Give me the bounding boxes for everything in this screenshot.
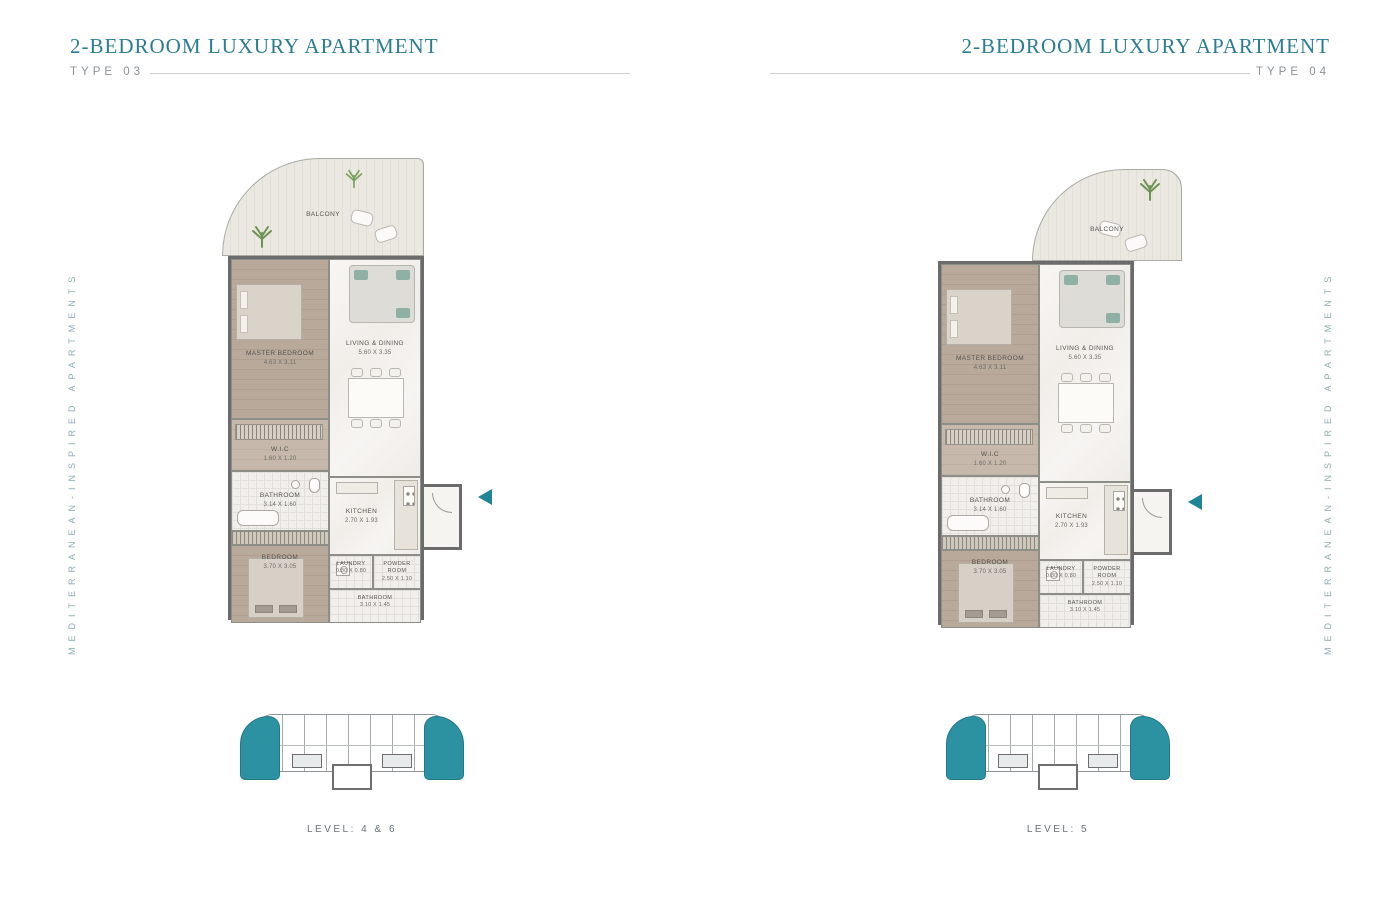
room-label: LIVING & DINING 5.60 X 3.35 [330, 340, 420, 357]
highlighted-unit-icon [240, 716, 280, 780]
balcony-area: BALCONY [222, 158, 424, 256]
room-powder-room: POWDER ROOM 2.50 X 1.10 [373, 555, 421, 589]
room-bedroom: BEDROOM 3.70 X 3.05 [231, 545, 329, 623]
keyplan-level-diagram-right [946, 708, 1170, 796]
room-label: BEDROOM 3.70 X 3.05 [232, 554, 328, 571]
stove-icon [403, 486, 415, 506]
room-label: LAUNDRY 0.80 X 0.80 [1040, 566, 1082, 581]
bathtub-icon [947, 515, 989, 531]
building-core-icon [1038, 764, 1078, 790]
room-name: KITCHEN [1056, 513, 1087, 520]
unit-outline: MASTER BEDROOM 4.63 X 3.11 LIVING & DINI… [228, 256, 424, 620]
room-dims: 2.70 X 1.93 [330, 517, 393, 525]
toilet-icon [1019, 483, 1030, 498]
room-dims: 2.50 X 1.10 [1084, 581, 1130, 588]
room-label: LAUNDRY 0.80 X 0.80 [330, 561, 372, 576]
room-name: MASTER BEDROOM [246, 350, 314, 357]
room-label: BALCONY [223, 211, 423, 220]
entrance-arrow-icon [478, 489, 492, 505]
door-swing-icon [1142, 498, 1162, 518]
room-dims: 1.60 X 1.20 [232, 455, 328, 463]
room-label: POWDER ROOM 2.50 X 1.10 [374, 561, 420, 583]
room-master-bedroom: MASTER BEDROOM 4.63 X 3.11 [941, 264, 1039, 424]
room-label: LIVING & DINING 5.60 X 3.35 [1040, 345, 1130, 362]
kitchen-counter-icon [336, 482, 378, 494]
type-label-right: TYPE 04 [1256, 66, 1330, 78]
room-kitchen: KITCHEN 2.70 X 1.93 [1039, 482, 1131, 560]
room-dims: 2.50 X 1.10 [374, 576, 420, 583]
bathtub-icon [237, 510, 279, 526]
plant-icon [1137, 178, 1163, 202]
room-kitchen: KITCHEN 2.70 X 1.93 [329, 477, 421, 555]
room-wic: W.I.C 1.60 X 1.20 [941, 424, 1039, 476]
room-name: BATHROOM [1068, 600, 1103, 606]
room-dims: 1.60 X 1.20 [942, 460, 1038, 468]
room-label: KITCHEN 2.70 X 1.93 [1040, 513, 1103, 530]
room-label: BALCONY [1033, 226, 1181, 235]
level-label-right: LEVEL: 5 [946, 824, 1170, 835]
room-name: LIVING & DINING [1056, 345, 1114, 352]
lounge-chair-icon [373, 224, 398, 244]
room-dims: 2.70 X 1.93 [1040, 522, 1103, 530]
room-living-dining: LIVING & DINING 5.60 X 3.35 [329, 259, 421, 477]
brochure-page: 2-BEDROOM LUXURY APARTMENT TYPE 03 2-BED… [0, 0, 1400, 912]
plant-icon [249, 225, 275, 249]
room-name: LAUNDRY [1047, 566, 1076, 572]
room-label: MASTER BEDROOM 4.63 X 3.11 [232, 350, 328, 367]
keyplan-level-diagram-left [240, 708, 464, 796]
level-label-left: LEVEL: 4 & 6 [240, 824, 464, 835]
wardrobe-icon [231, 531, 329, 545]
room-label: W.I.C 1.60 X 1.20 [232, 446, 328, 463]
sofa-icon [1059, 270, 1125, 328]
room-dims: 0.80 X 0.80 [1040, 573, 1082, 580]
room-dims: 3.10 X 1.45 [1040, 607, 1130, 614]
building-core-icon [332, 764, 372, 790]
room-name: W.I.C [271, 446, 289, 453]
room-label: KITCHEN 2.70 X 1.93 [330, 508, 393, 525]
dining-table-icon [348, 378, 404, 418]
entry-vestibule [1134, 489, 1172, 555]
page-title-left: 2-BEDROOM LUXURY APARTMENT [70, 34, 439, 59]
bed-icon [946, 289, 1012, 345]
sofa-icon [349, 265, 415, 323]
room-bathroom-2: BATHROOM 3.10 X 1.45 [1039, 594, 1131, 628]
room-dims: 0.80 X 0.80 [330, 568, 372, 575]
room-label: MASTER BEDROOM 4.63 X 3.11 [942, 355, 1038, 372]
room-bathroom: BATHROOM 3.14 X 1.60 [231, 471, 329, 531]
type-label-left: TYPE 03 [70, 66, 144, 78]
room-master-bedroom: MASTER BEDROOM 4.63 X 3.11 [231, 259, 329, 419]
plant-icon [343, 169, 365, 189]
room-label: BATHROOM 3.14 X 1.60 [942, 497, 1038, 514]
room-dims: 3.70 X 3.05 [942, 568, 1038, 576]
toilet-icon [309, 478, 320, 493]
room-dims: 3.14 X 1.60 [942, 506, 1038, 514]
header-rule-right [770, 73, 1250, 74]
balcony-area: BALCONY [1032, 169, 1182, 261]
building-core-icon [998, 754, 1028, 768]
room-label: BATHROOM 3.10 X 1.45 [330, 595, 420, 610]
sink-icon [291, 480, 300, 489]
sink-icon [1001, 485, 1010, 494]
bed-icon [236, 284, 302, 340]
room-label: BEDROOM 3.70 X 3.05 [942, 559, 1038, 576]
side-caption-left: MEDITERRANEAN-INSPIRED APARTMENTS [62, 185, 82, 740]
room-name: BATHROOM [260, 492, 300, 499]
room-label: POWDER ROOM 2.50 X 1.10 [1084, 566, 1130, 588]
door-swing-icon [432, 493, 452, 513]
header-rule-left [150, 73, 630, 74]
room-name: KITCHEN [346, 508, 377, 515]
room-name: BALCONY [1090, 226, 1124, 233]
floorplan-type-03: BALCONY MASTER BEDROOM 4.63 X 3.11 LIVIN… [228, 158, 498, 623]
highlighted-unit-icon [946, 716, 986, 780]
room-dims: 4.63 X 3.11 [942, 364, 1038, 372]
entry-vestibule [424, 484, 462, 550]
building-core-icon [382, 754, 412, 768]
room-name: BALCONY [306, 211, 340, 218]
wardrobe-icon [941, 536, 1039, 550]
room-bathroom-2: BATHROOM 3.10 X 1.45 [329, 589, 421, 623]
room-laundry: LAUNDRY 0.80 X 0.80 [329, 555, 373, 589]
building-core-icon [1088, 754, 1118, 768]
wardrobe-icon [235, 424, 323, 440]
lounge-chair-icon [1123, 233, 1148, 253]
room-name: POWDER ROOM [1093, 566, 1120, 579]
unit-outline: MASTER BEDROOM 4.63 X 3.11 LIVING & DINI… [938, 261, 1134, 625]
side-caption-right: MEDITERRANEAN-INSPIRED APARTMENTS [1318, 185, 1338, 740]
room-dims: 5.60 X 3.35 [1040, 354, 1130, 362]
room-dims: 3.70 X 3.05 [232, 563, 328, 571]
room-name: LAUNDRY [337, 561, 366, 567]
room-dims: 3.14 X 1.60 [232, 501, 328, 509]
highlighted-unit-icon [424, 716, 464, 780]
room-bedroom: BEDROOM 3.70 X 3.05 [941, 550, 1039, 628]
page-title-right: 2-BEDROOM LUXURY APARTMENT [961, 34, 1330, 59]
room-name: MASTER BEDROOM [956, 355, 1024, 362]
stove-icon [1113, 491, 1125, 511]
room-name: BEDROOM [262, 554, 298, 561]
room-living-dining: LIVING & DINING 5.60 X 3.35 [1039, 264, 1131, 482]
room-powder-room: POWDER ROOM 2.50 X 1.10 [1083, 560, 1131, 594]
room-label: BATHROOM 3.14 X 1.60 [232, 492, 328, 509]
room-bathroom: BATHROOM 3.14 X 1.60 [941, 476, 1039, 536]
entrance-arrow-icon [1188, 494, 1202, 510]
room-name: BATHROOM [358, 595, 393, 601]
wardrobe-icon [945, 429, 1033, 445]
highlighted-unit-icon [1130, 716, 1170, 780]
room-dims: 5.60 X 3.35 [330, 349, 420, 357]
room-dims: 4.63 X 3.11 [232, 359, 328, 367]
room-label: W.I.C 1.60 X 1.20 [942, 451, 1038, 468]
room-name: POWDER ROOM [383, 561, 410, 574]
room-name: LIVING & DINING [346, 340, 404, 347]
room-name: BEDROOM [972, 559, 1008, 566]
dining-table-icon [1058, 383, 1114, 423]
floorplan-type-04: BALCONY MASTER BEDROOM 4.63 X 3.11 LIVIN… [938, 163, 1208, 628]
room-laundry: LAUNDRY 0.80 X 0.80 [1039, 560, 1083, 594]
room-name: BATHROOM [970, 497, 1010, 504]
room-name: W.I.C [981, 451, 999, 458]
kitchen-counter-icon [1046, 487, 1088, 499]
room-wic: W.I.C 1.60 X 1.20 [231, 419, 329, 471]
room-label: BATHROOM 3.10 X 1.45 [1040, 600, 1130, 615]
building-core-icon [292, 754, 322, 768]
room-dims: 3.10 X 1.45 [330, 602, 420, 609]
